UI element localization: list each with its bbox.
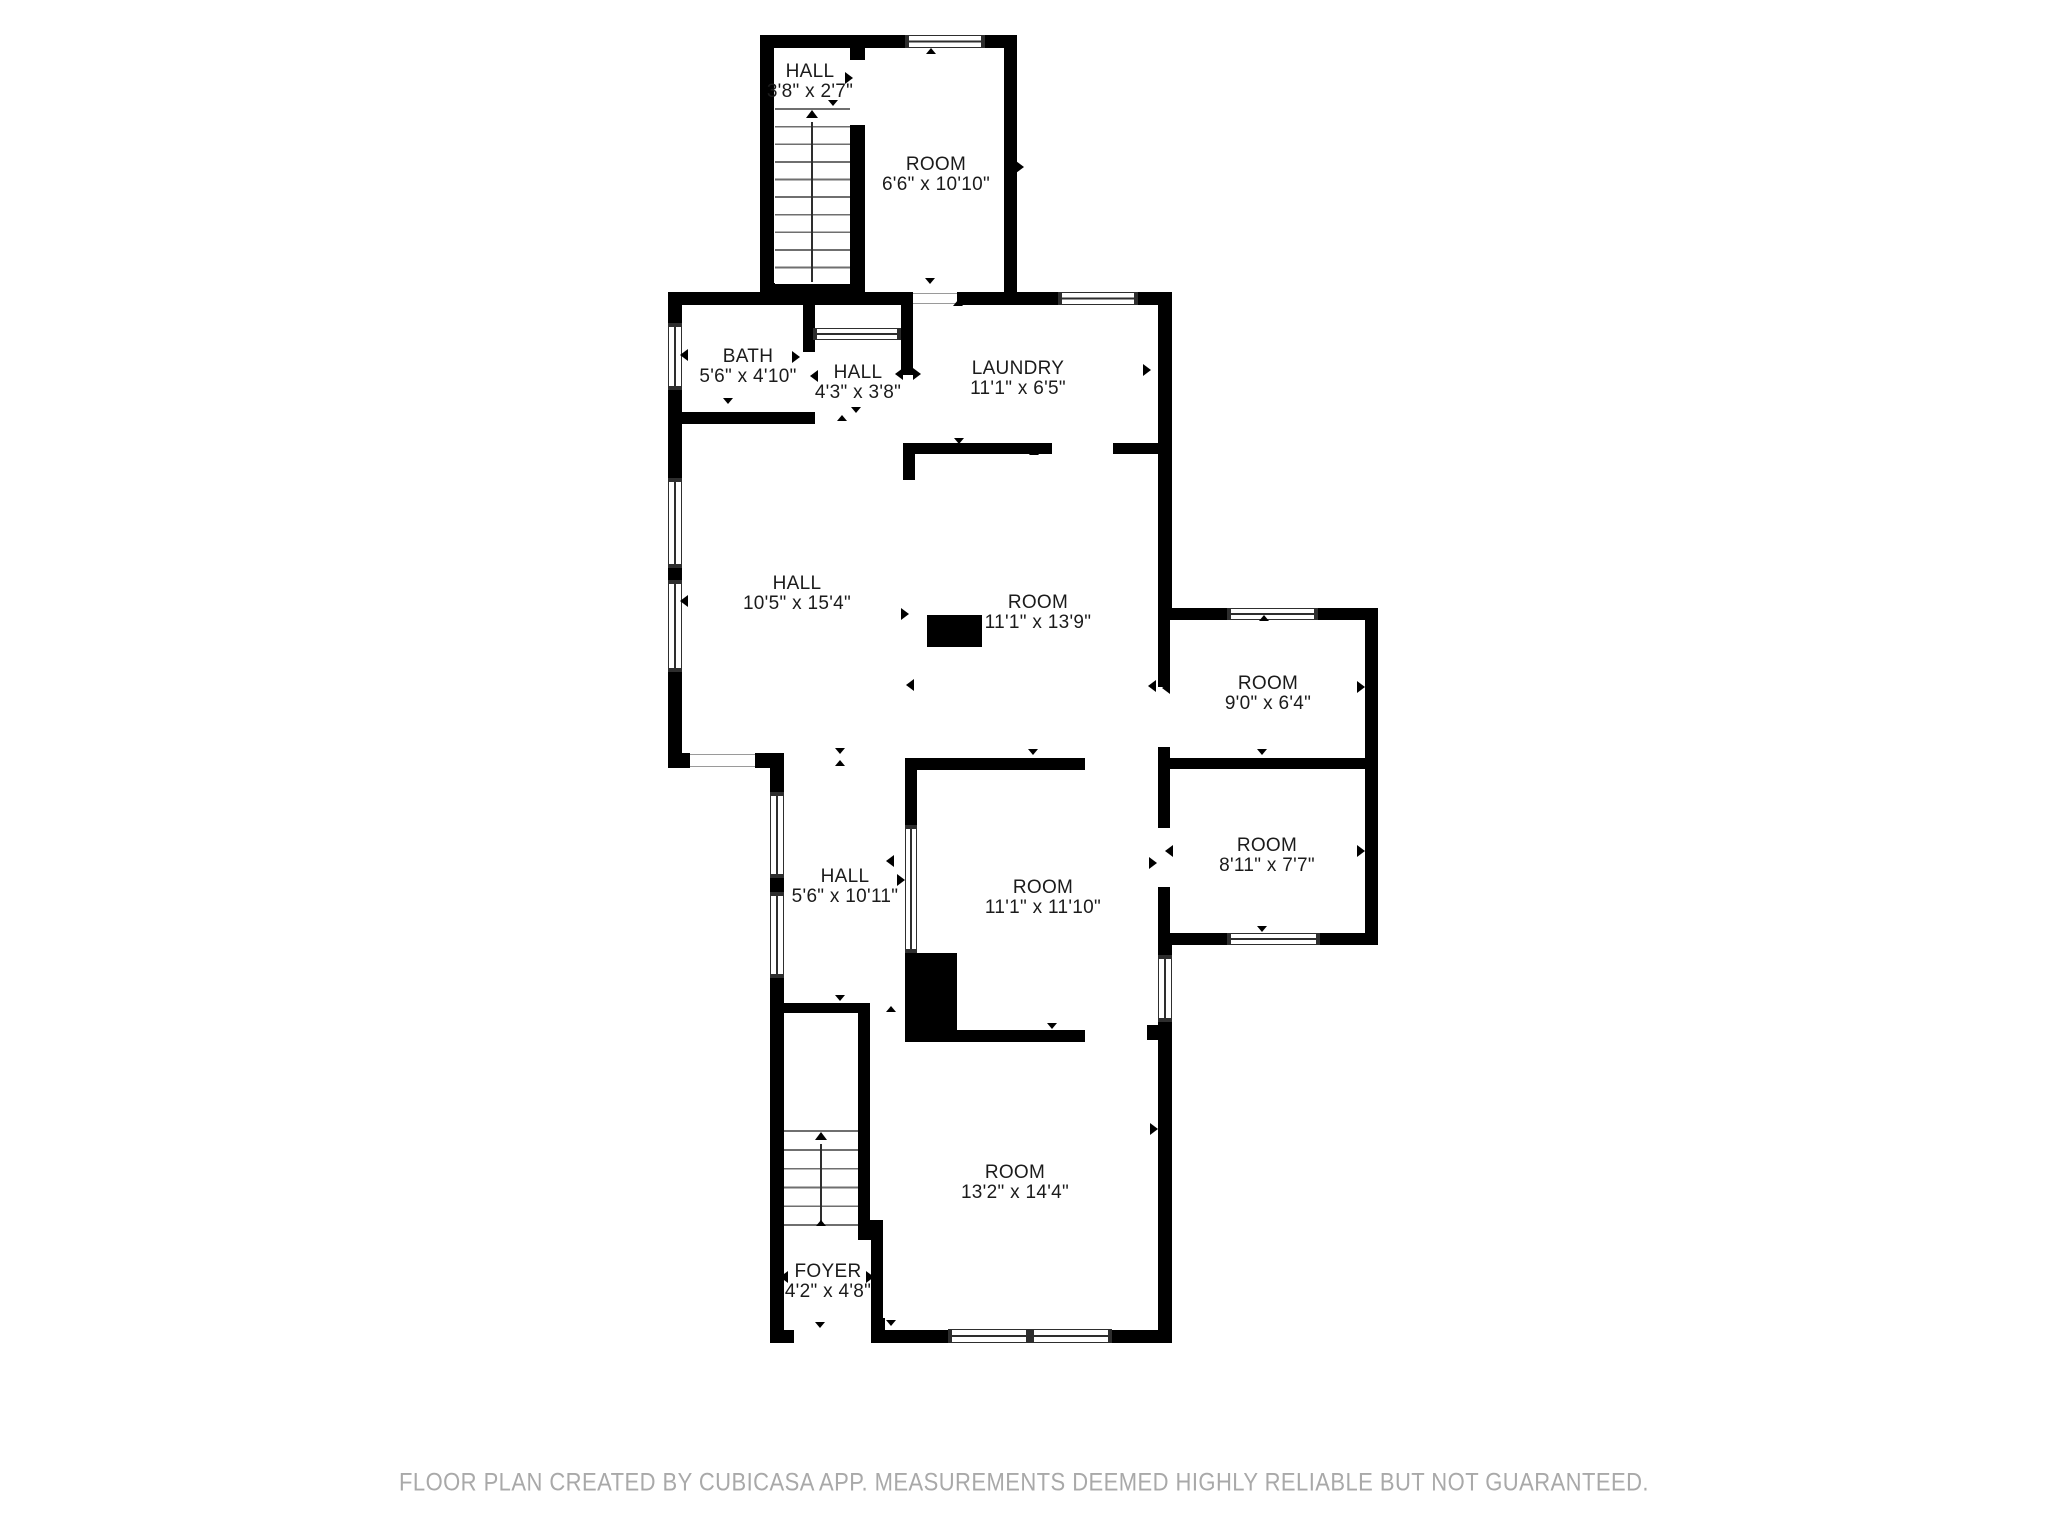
door-arrow-icon [835, 995, 845, 1001]
door-arrow-icon [680, 349, 688, 361]
door-arrow-icon [723, 398, 733, 404]
floor-plan-page: HALL 3'8" x 2'7" ROOM 6'6" x 10'10" BATH… [0, 0, 2048, 1536]
room-label-room-center: ROOM 11'1" x 11'10" [985, 878, 1101, 918]
room-dimensions: 11'1" x 13'9" [985, 613, 1092, 633]
door-arrow-icon [680, 595, 688, 607]
wall [760, 35, 907, 48]
door-arrow-icon [953, 300, 963, 306]
window [1227, 608, 1318, 620]
window [948, 1329, 1030, 1343]
stair-direction-line [820, 1144, 822, 1222]
room-dimensions: 9'0" x 6'4" [1225, 694, 1311, 714]
room-label-laundry: LAUNDRY 11'1" x 6'5" [970, 359, 1066, 399]
wall [871, 1330, 948, 1343]
wall [850, 35, 865, 60]
door-arrow-icon [1047, 1023, 1057, 1029]
room-label-room-ne: ROOM 9'0" x 6'4" [1225, 674, 1311, 714]
room-dimensions: 5'6" x 10'11" [792, 887, 899, 907]
window [1030, 1329, 1112, 1343]
room-dimensions: 4'3" x 3'8" [815, 383, 901, 403]
room-label-bath: BATH 5'6" x 4'10" [699, 347, 796, 387]
wall [1158, 887, 1170, 933]
opening [913, 293, 957, 304]
door-arrow-icon [926, 48, 936, 54]
room-label-hall-top: HALL 3'8" x 2'7" [767, 62, 853, 102]
window [668, 580, 682, 672]
door-arrow-icon [886, 1320, 896, 1326]
room-label-foyer: FOYER 4'2" x 4'8" [785, 1262, 871, 1302]
door-arrow-icon [1148, 680, 1156, 692]
wall [1158, 292, 1172, 620]
sliding-door [813, 328, 901, 340]
wall [858, 1220, 883, 1240]
room-dimensions: 3'8" x 2'7" [767, 82, 853, 102]
wall [871, 1240, 883, 1328]
door-arrow-icon [925, 278, 935, 284]
room-name: ROOM [985, 593, 1092, 613]
room-name: ROOM [961, 1163, 1069, 1183]
wall [905, 1030, 1085, 1042]
door-arrow-icon [886, 855, 894, 867]
door-arrow-icon [837, 415, 847, 421]
door-arrow-icon [835, 748, 845, 754]
window [770, 792, 784, 878]
room-dimensions: 6'6" x 10'10" [882, 175, 990, 195]
wall [668, 568, 682, 580]
room-label-hall-lower: HALL 5'6" x 10'11" [792, 867, 899, 907]
interior-window [905, 825, 917, 953]
door-arrow-icon [1150, 1123, 1158, 1135]
room-dimensions: 8'11" x 7'7" [1219, 856, 1315, 876]
wall [770, 978, 784, 1343]
door-arrow-icon [886, 1006, 896, 1012]
wall [782, 1003, 870, 1013]
room-name: ROOM [1225, 674, 1311, 694]
wall [1158, 608, 1227, 620]
footer-disclaimer: FLOOR PLAN CREATED BY CUBICASA APP. MEAS… [399, 1469, 1649, 1498]
wall [858, 1013, 870, 1223]
door-arrow-icon [1028, 749, 1038, 755]
wall [1158, 1022, 1172, 1343]
chimney [905, 953, 957, 1032]
window [1058, 292, 1138, 305]
room-name: HALL [743, 574, 851, 594]
door-arrow-icon [1162, 682, 1170, 694]
door-arrow-icon [913, 368, 921, 380]
stair-arrow-icon [816, 1220, 826, 1226]
room-label-room-south: ROOM 13'2" x 14'4" [961, 1163, 1069, 1203]
door-arrow-icon [1257, 749, 1267, 755]
window [905, 35, 985, 48]
wall [1158, 747, 1170, 758]
room-dimensions: 11'1" x 11'10" [985, 898, 1101, 918]
door-arrow-icon [723, 294, 733, 300]
window [1227, 933, 1320, 945]
wall [1158, 758, 1378, 769]
door-arrow-icon [860, 1123, 868, 1135]
door-arrow-icon [835, 760, 845, 766]
door-arrow-icon [815, 1322, 825, 1328]
wall [803, 292, 815, 352]
door-arrow-icon [851, 407, 861, 413]
wall [905, 770, 917, 828]
room-label-hall-main: HALL 10'5" x 15'4" [743, 574, 851, 614]
room-label-room-top: ROOM 6'6" x 10'10" [882, 155, 990, 195]
door-arrow-icon [1149, 857, 1157, 869]
stair-arrow-icon [815, 1132, 827, 1140]
room-name: HALL [792, 867, 899, 887]
wall [668, 753, 690, 768]
door-arrow-icon [1257, 762, 1267, 768]
door-arrow-icon [1016, 161, 1024, 173]
wall [668, 390, 682, 478]
room-label-room-mid: ROOM 11'1" x 13'9" [985, 593, 1092, 633]
wall [901, 292, 913, 375]
opening [690, 754, 755, 767]
door-arrow-icon [1257, 926, 1267, 932]
room-dimensions: 5'6" x 4'10" [699, 367, 796, 387]
door-arrow-icon [1357, 845, 1365, 857]
window [1158, 955, 1172, 1022]
wall [1320, 933, 1378, 945]
chimney [927, 615, 982, 647]
room-name: FOYER [785, 1262, 871, 1282]
door-arrow-icon [1357, 681, 1365, 693]
wall [957, 292, 1058, 305]
room-dimensions: 13'2" x 14'4" [961, 1183, 1069, 1203]
window [668, 478, 682, 568]
wall [770, 1330, 794, 1343]
door-arrow-icon [1259, 615, 1269, 621]
wall [850, 125, 865, 303]
door-arrow-icon [1049, 761, 1059, 767]
wall [770, 878, 784, 892]
door-arrow-icon [906, 679, 914, 691]
room-label-room-e: ROOM 8'11" x 7'7" [1219, 836, 1315, 876]
wall [1158, 620, 1170, 687]
wall [668, 292, 913, 305]
door-arrow-icon [1143, 364, 1151, 376]
room-label-hall-small: HALL 4'3" x 3'8" [815, 363, 901, 403]
wall [1365, 608, 1378, 945]
wall [1158, 933, 1227, 945]
wall [668, 305, 682, 323]
room-dimensions: 10'5" x 15'4" [743, 594, 851, 614]
window [770, 892, 784, 978]
room-name: HALL [815, 363, 901, 383]
wall [668, 412, 815, 424]
room-name: ROOM [882, 155, 990, 175]
stair-direction-line [811, 122, 813, 282]
room-name: HALL [767, 62, 853, 82]
wall [1158, 769, 1170, 828]
stair-arrow-icon [806, 110, 818, 118]
door-arrow-icon [954, 438, 964, 444]
room-dimensions: 11'1" x 6'5" [970, 379, 1066, 399]
wall [770, 753, 784, 792]
room-name: LAUNDRY [970, 359, 1066, 379]
door-arrow-icon [1165, 845, 1173, 857]
door-arrow-icon [1029, 449, 1039, 455]
room-name: ROOM [985, 878, 1101, 898]
room-name: BATH [699, 347, 796, 367]
room-dimensions: 4'2" x 4'8" [785, 1282, 871, 1302]
room-name: ROOM [1219, 836, 1315, 856]
door-arrow-icon [901, 608, 909, 620]
